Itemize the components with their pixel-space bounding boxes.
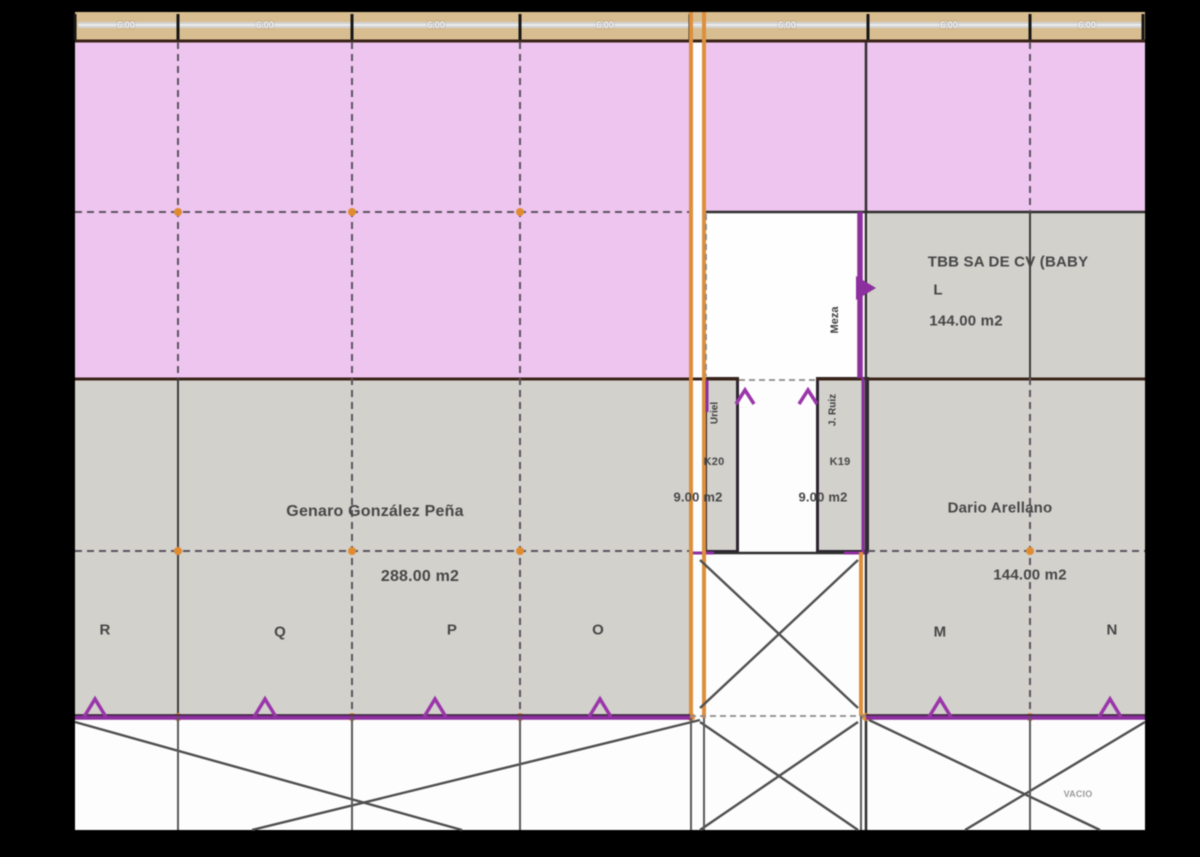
stall-dario-zone xyxy=(868,378,1145,716)
stall-tbb-name: TBB SA DE CV (BABY xyxy=(928,254,1089,271)
plan-content: 6.00 6.00 6.00 6.00 6.00 6.00 6.00 TBB S… xyxy=(0,0,1200,857)
stall-k19-tenant-surname: Meza xyxy=(829,307,841,334)
column-letter-m: M xyxy=(934,624,947,641)
pink-zone-left xyxy=(75,42,690,378)
column-letter-n: N xyxy=(1106,622,1117,639)
stall-tbb-zone xyxy=(868,212,1145,378)
dim-label: 6.00 xyxy=(778,20,796,30)
stall-tbb-area: 144.00 m2 xyxy=(929,313,1003,330)
stall-k19-area: 9.00 m2 xyxy=(798,490,847,505)
dim-label: 6.00 xyxy=(256,20,274,30)
pink-zone-right xyxy=(706,42,1145,212)
vacio-note: VACIO xyxy=(1064,789,1093,799)
stall-dario-name: Dario Arellano xyxy=(948,500,1053,517)
dim-label: 6.00 xyxy=(1078,20,1096,30)
column-letter-o: O xyxy=(592,622,604,639)
dim-label: 6.00 xyxy=(940,20,958,30)
stall-genaro-area: 288.00 m2 xyxy=(381,568,459,586)
stall-k20-tenant: Uriel xyxy=(710,402,721,424)
stall-k20-area: 9.00 m2 xyxy=(673,490,722,505)
stall-k19-code: K19 xyxy=(830,456,851,468)
stall-k19-tenant: J. Ruiz xyxy=(828,394,839,426)
corridor-room xyxy=(706,212,868,378)
stall-genaro-name: Genaro González Peña xyxy=(286,503,463,521)
dim-label: 6.00 xyxy=(427,20,445,30)
column-letter-p: P xyxy=(447,622,457,639)
dim-label: 6.00 xyxy=(596,20,614,30)
dim-label: 6.00 xyxy=(117,20,135,30)
stall-genaro-zone xyxy=(75,378,690,716)
stall-k20-code: K20 xyxy=(704,456,725,468)
stall-dario-area: 144.00 m2 xyxy=(993,567,1067,584)
column-letter-q: Q xyxy=(274,624,286,641)
stall-tbb-unit: L xyxy=(933,282,942,299)
floor-plan-screenshot: 6.00 6.00 6.00 6.00 6.00 6.00 6.00 TBB S… xyxy=(0,0,1200,857)
column-letter-r: R xyxy=(99,622,110,639)
